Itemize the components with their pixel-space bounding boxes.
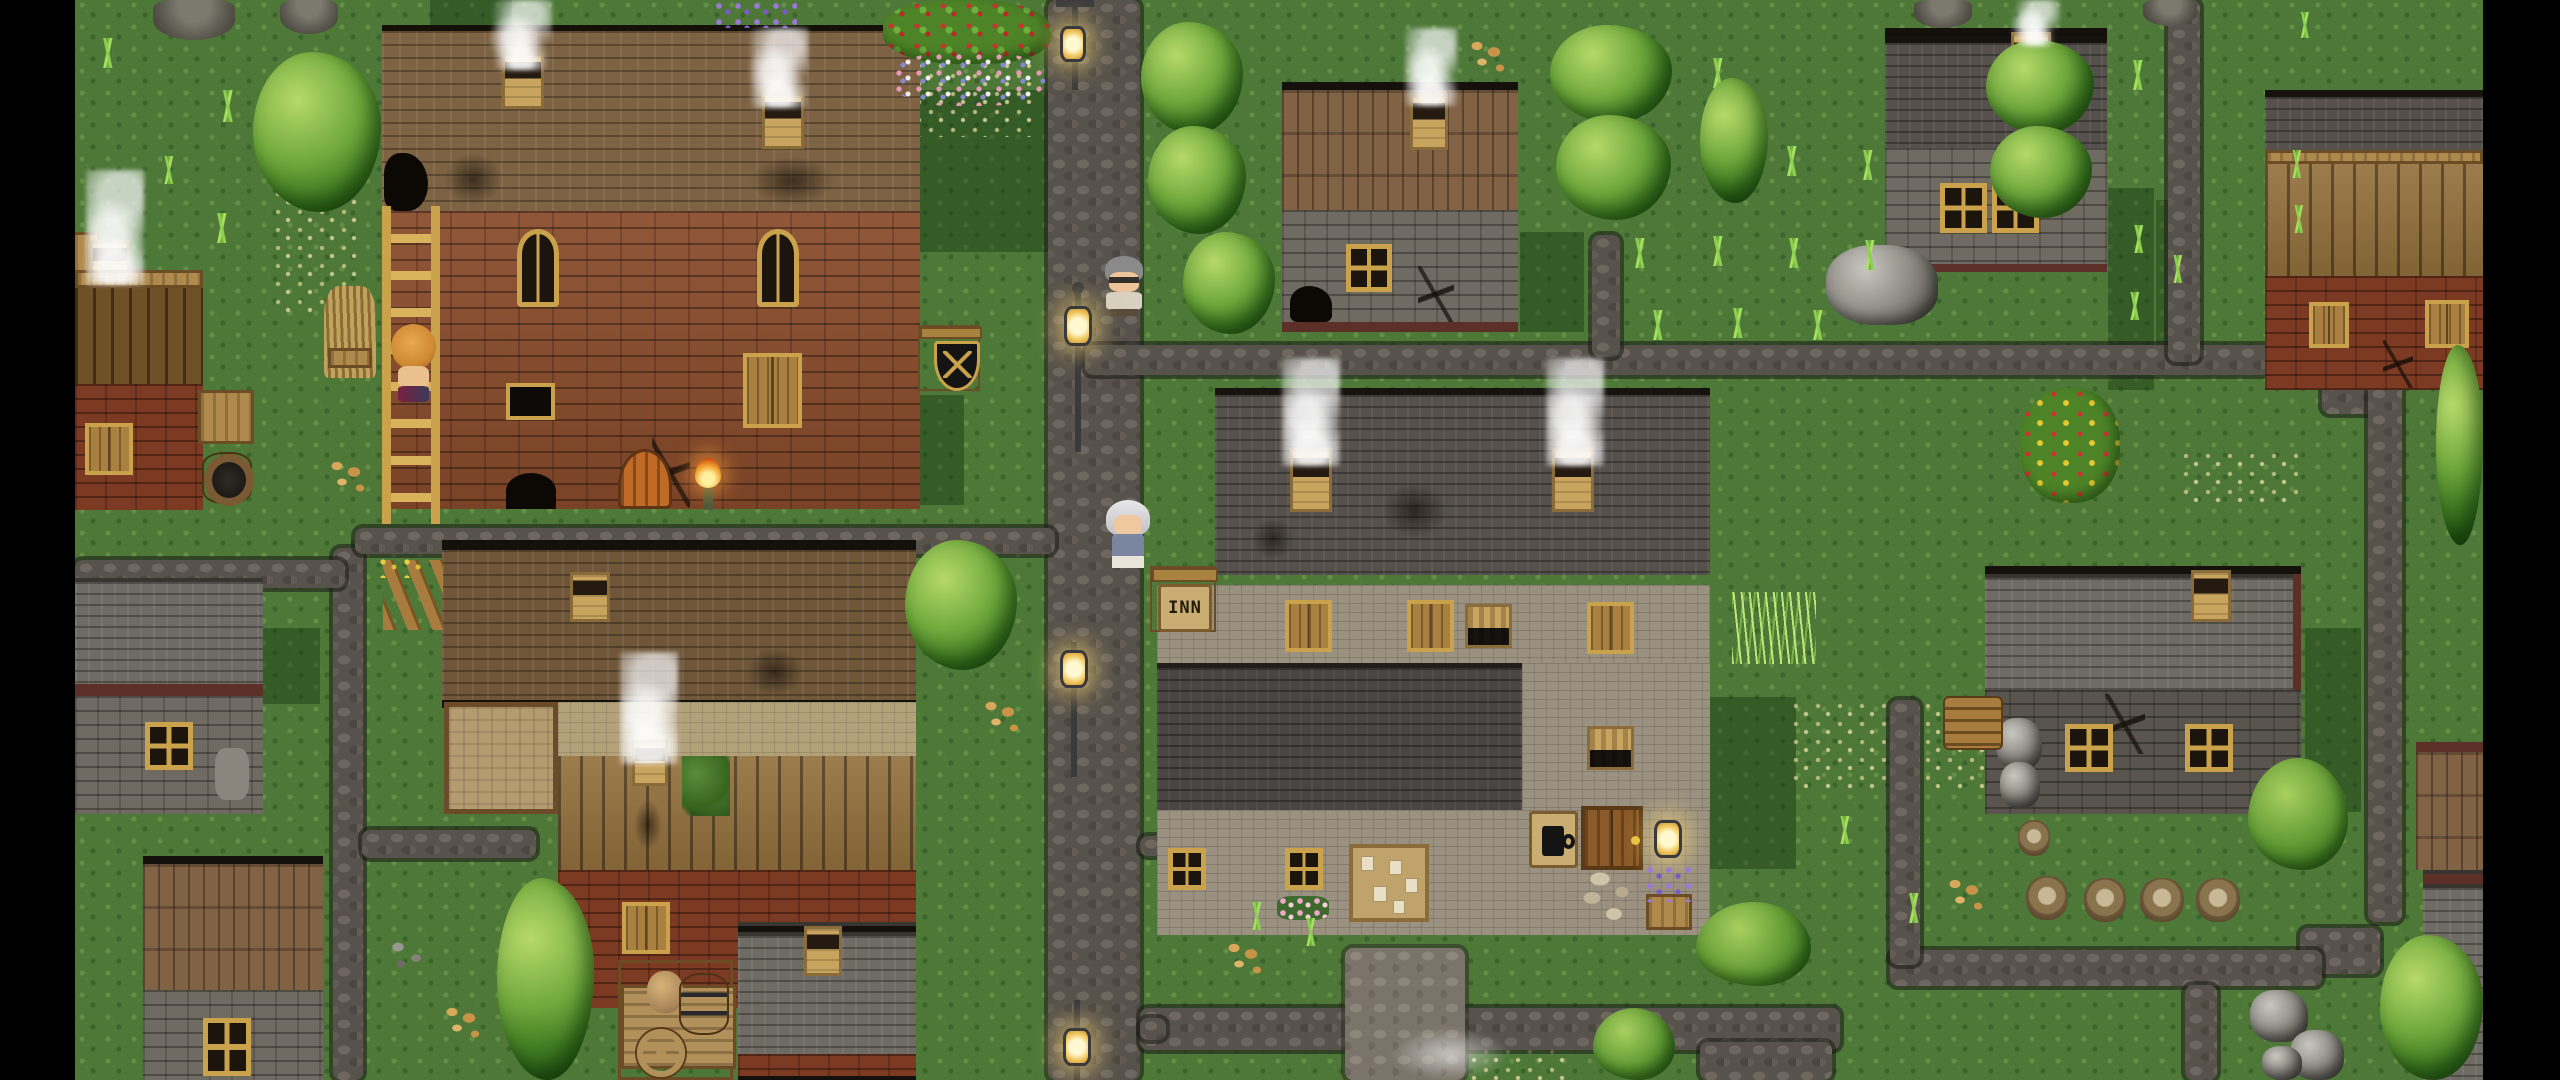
tree <box>497 878 594 1080</box>
path-south-branch <box>2185 985 2217 1080</box>
path-thin-mid <box>1890 700 1920 965</box>
awning-window <box>1465 604 1512 648</box>
cargo-cart <box>618 960 733 1080</box>
chimney <box>570 572 610 622</box>
mug-icon <box>1542 826 1564 856</box>
grass-shade-patch <box>1700 697 1796 869</box>
crop-tuft <box>1852 240 1888 270</box>
posted-note <box>1393 900 1405 914</box>
vine <box>682 756 730 816</box>
mug-handle-icon <box>1562 834 1575 849</box>
roof-trim <box>75 684 263 696</box>
road-stub <box>1140 1018 1166 1040</box>
dark-window <box>506 383 555 420</box>
roof-edge <box>1282 82 1518 90</box>
tree-stump <box>2140 878 2184 922</box>
game-viewport: INN <box>0 0 2560 1080</box>
coat <box>1106 292 1142 310</box>
smithy-sign[interactable] <box>918 325 980 391</box>
rock <box>2262 1046 2302 1080</box>
shuttered-window <box>1407 600 1454 652</box>
left-cottage <box>75 578 263 814</box>
posted-note <box>1361 856 1374 871</box>
tree-trunk-top <box>2143 0 2197 26</box>
tree-stump <box>2084 878 2126 922</box>
arched-window <box>757 229 799 307</box>
back <box>398 366 429 388</box>
window <box>1940 183 1987 233</box>
chimney <box>804 926 842 976</box>
roof-soot <box>1382 483 1447 538</box>
roof-gable-trim <box>2293 574 2301 690</box>
chimney-smoke <box>620 652 678 764</box>
posted-note <box>1373 886 1387 902</box>
bush <box>1593 1008 1675 1080</box>
mushrooms <box>441 1004 499 1050</box>
tree <box>253 52 381 212</box>
bottomleft-cottage <box>143 856 323 1080</box>
bottomright-barn <box>2416 742 2483 870</box>
roof <box>143 864 323 990</box>
roof-soot <box>750 157 834 205</box>
letterbox-left <box>0 0 75 1080</box>
arched-window <box>517 229 559 307</box>
sand-speckle-patch <box>2180 450 2298 508</box>
upper-wall <box>558 702 916 756</box>
window <box>1346 244 1392 292</box>
chimney-smoke <box>1282 358 1340 466</box>
posted-note <box>1389 860 1402 875</box>
tree <box>1990 126 2092 218</box>
crop-tuft <box>1640 310 1676 340</box>
grass-tuft <box>1295 918 1327 946</box>
mushrooms <box>326 458 374 500</box>
flower-planter <box>1644 864 1694 930</box>
dress <box>1112 534 1144 558</box>
rock <box>2000 762 2040 808</box>
wall-hole <box>506 473 556 509</box>
roof <box>1985 574 2301 690</box>
roof-edge <box>143 856 323 864</box>
shuttered-window <box>2309 302 2349 348</box>
right-edge-house <box>2265 90 2483 390</box>
inn-sign[interactable]: INN <box>1150 566 1216 632</box>
base-trim <box>1282 322 1518 332</box>
sign-post-arm <box>1152 568 1218 582</box>
crop-tuft <box>1622 238 1658 268</box>
crossed-tools-shield-icon <box>934 341 980 391</box>
glasses <box>1109 277 1139 283</box>
pants <box>398 386 429 402</box>
hay-cart <box>324 286 376 378</box>
front-roof <box>1157 663 1522 810</box>
boots <box>1110 309 1138 316</box>
bush <box>2248 758 2348 870</box>
wall-crack <box>2383 340 2413 388</box>
shuttered-window <box>743 353 802 428</box>
crop-tuft <box>2120 60 2156 90</box>
wheel <box>637 1029 685 1077</box>
roof-soot <box>444 153 502 205</box>
torch <box>691 458 725 510</box>
tree <box>2380 935 2483 1080</box>
roof-edge <box>1885 28 2107 36</box>
roof <box>442 550 916 700</box>
bush <box>1696 902 1811 986</box>
grass-tuft <box>2290 12 2320 38</box>
crop-tuft <box>1800 310 1836 340</box>
sack <box>647 971 683 1013</box>
face <box>1114 515 1142 535</box>
lamp-arm <box>1056 0 1094 7</box>
firewood-pile <box>1943 696 2003 750</box>
wall-soot <box>634 800 662 850</box>
tree-trunk-top <box>1914 0 1972 28</box>
roof <box>1282 90 1518 210</box>
smithy-house <box>382 25 920 509</box>
street-lamp <box>1056 642 1092 777</box>
awning-window <box>1587 726 1634 770</box>
tree <box>1550 25 1672 123</box>
tall-grass <box>1732 592 1816 664</box>
plank-wall <box>75 288 203 384</box>
shuttered-window <box>622 902 670 954</box>
npc-orange-haired-climber[interactable] <box>391 324 436 402</box>
path-field-branch <box>1592 235 1620 357</box>
crop-tuft <box>1850 150 1886 180</box>
tree <box>1148 126 1246 234</box>
road-horizontal-lowright <box>1890 950 2322 986</box>
roof-soot <box>1252 518 1294 560</box>
window-flowerbox <box>1277 896 1329 920</box>
grass-tuft <box>210 90 246 122</box>
tree <box>1183 232 1275 334</box>
notice-board[interactable] <box>1349 844 1429 922</box>
tree <box>2436 345 2483 545</box>
roof <box>2416 752 2483 870</box>
crop-tuft <box>1776 238 1812 268</box>
window-dark-pane <box>203 1018 251 1076</box>
window <box>1285 848 1323 890</box>
ground-mist <box>1390 1028 1510 1080</box>
chimney-smoke <box>86 170 144 285</box>
window <box>2185 724 2233 772</box>
chimney-smoke <box>1546 358 1604 466</box>
plaza-house <box>1282 82 1518 332</box>
chimney <box>2191 570 2231 622</box>
purple-flowers <box>1644 864 1694 902</box>
crop-tuft <box>1720 308 1756 338</box>
roof-trim <box>2423 874 2483 884</box>
hair <box>391 324 436 370</box>
berry-bush <box>2020 388 2120 503</box>
roof-edge <box>1985 566 2301 574</box>
sign-post-arm <box>920 327 982 339</box>
shuttered-window <box>2425 300 2469 348</box>
shuttered-door[interactable] <box>85 423 133 475</box>
stone-patch <box>215 748 249 800</box>
lamp-lantern <box>1063 1028 1091 1066</box>
purple-flower-patch <box>713 0 797 28</box>
npc-old-man[interactable] <box>1101 256 1147 316</box>
chimney-smoke <box>750 28 808 108</box>
roof <box>75 578 263 684</box>
cart-base <box>328 348 372 368</box>
log-wall <box>558 756 916 870</box>
inn-door[interactable] <box>1581 806 1643 870</box>
tree <box>1986 40 2094 134</box>
stones <box>386 938 440 998</box>
tree-trunk-top <box>153 0 235 40</box>
gray-shed <box>738 922 916 1080</box>
shadow-base <box>738 1076 916 1080</box>
street-lamp <box>1060 282 1096 452</box>
coal-barrel <box>202 452 252 504</box>
letterbox-right <box>2483 0 2560 1080</box>
bench <box>198 390 254 444</box>
tree-trunk-top <box>280 0 338 34</box>
window <box>2065 724 2113 772</box>
skirt <box>1112 556 1144 568</box>
road-horizontal-bottom2 <box>1700 1042 1832 1080</box>
chimney-smoke <box>1405 28 1457 106</box>
lamp-lantern <box>1060 26 1086 62</box>
barrel <box>679 973 729 1035</box>
tree <box>1700 78 1768 203</box>
chimney-smoke <box>2010 0 2060 46</box>
window <box>145 722 193 770</box>
roof-edge <box>442 540 916 550</box>
posted-note <box>1405 878 1418 893</box>
grass-tuft <box>203 213 241 243</box>
road-horizontal-east <box>1085 345 2330 375</box>
npc-silver-haired-woman[interactable] <box>1104 500 1152 568</box>
roof <box>2265 90 2483 150</box>
grass-tuft <box>90 38 126 68</box>
mushrooms <box>1944 876 2002 926</box>
tree <box>905 540 1017 670</box>
grass-tuft <box>2284 205 2314 233</box>
courtyard <box>444 702 558 814</box>
roof-trim <box>2416 742 2483 752</box>
tree-stump <box>2018 820 2050 856</box>
crop-tuft <box>2118 292 2152 320</box>
grass-tuft <box>153 156 185 184</box>
grass-shade-patch <box>260 628 320 704</box>
mushrooms <box>1223 940 1275 986</box>
wall-hole <box>1290 286 1332 322</box>
crop-tuft <box>2122 225 2156 253</box>
street-lamp <box>1058 1000 1096 1080</box>
flame <box>695 458 721 488</box>
stepping-stones <box>1580 868 1644 930</box>
tree <box>1141 22 1243 134</box>
mushrooms <box>980 698 1032 746</box>
crop-tuft <box>1700 236 1736 266</box>
inn-building <box>1157 388 1710 935</box>
grass-tuft <box>2282 150 2312 178</box>
tree-stump <box>2026 876 2068 920</box>
chimney-smoke <box>490 0 552 70</box>
lamp-lantern <box>1060 650 1088 688</box>
branch-crack <box>1418 266 1454 322</box>
grass-tuft <box>1241 902 1273 930</box>
window <box>1168 848 1206 890</box>
ground-lantern[interactable] <box>1654 820 1682 858</box>
tree-stump <box>2196 878 2240 922</box>
mug-sign[interactable] <box>1529 811 1578 868</box>
yellow-flowers <box>376 556 428 578</box>
tree <box>1556 115 1671 220</box>
coal <box>212 462 246 498</box>
inn-sign-board[interactable]: INN <box>1158 584 1212 632</box>
street-lamp <box>1056 0 1094 90</box>
road-vertical-topright <box>2168 0 2200 362</box>
flower-patch <box>893 52 1045 106</box>
grass-tuft <box>1896 893 1932 923</box>
lamp-lantern <box>1064 306 1092 346</box>
shuttered-window <box>1285 600 1332 652</box>
roof-soot <box>747 648 802 696</box>
grass-shade-patch <box>1520 232 1584 332</box>
path-thin-left-vertical <box>333 548 363 1080</box>
door-knob <box>1631 836 1640 845</box>
crop-tuft <box>1774 146 1810 176</box>
brick-base <box>738 1054 916 1076</box>
road-vertical-right <box>2368 360 2402 922</box>
crop-tuft <box>2162 255 2194 283</box>
mushrooms <box>1466 38 1518 82</box>
grass-tuft <box>1828 816 1862 844</box>
shuttered-window <box>1587 602 1634 654</box>
